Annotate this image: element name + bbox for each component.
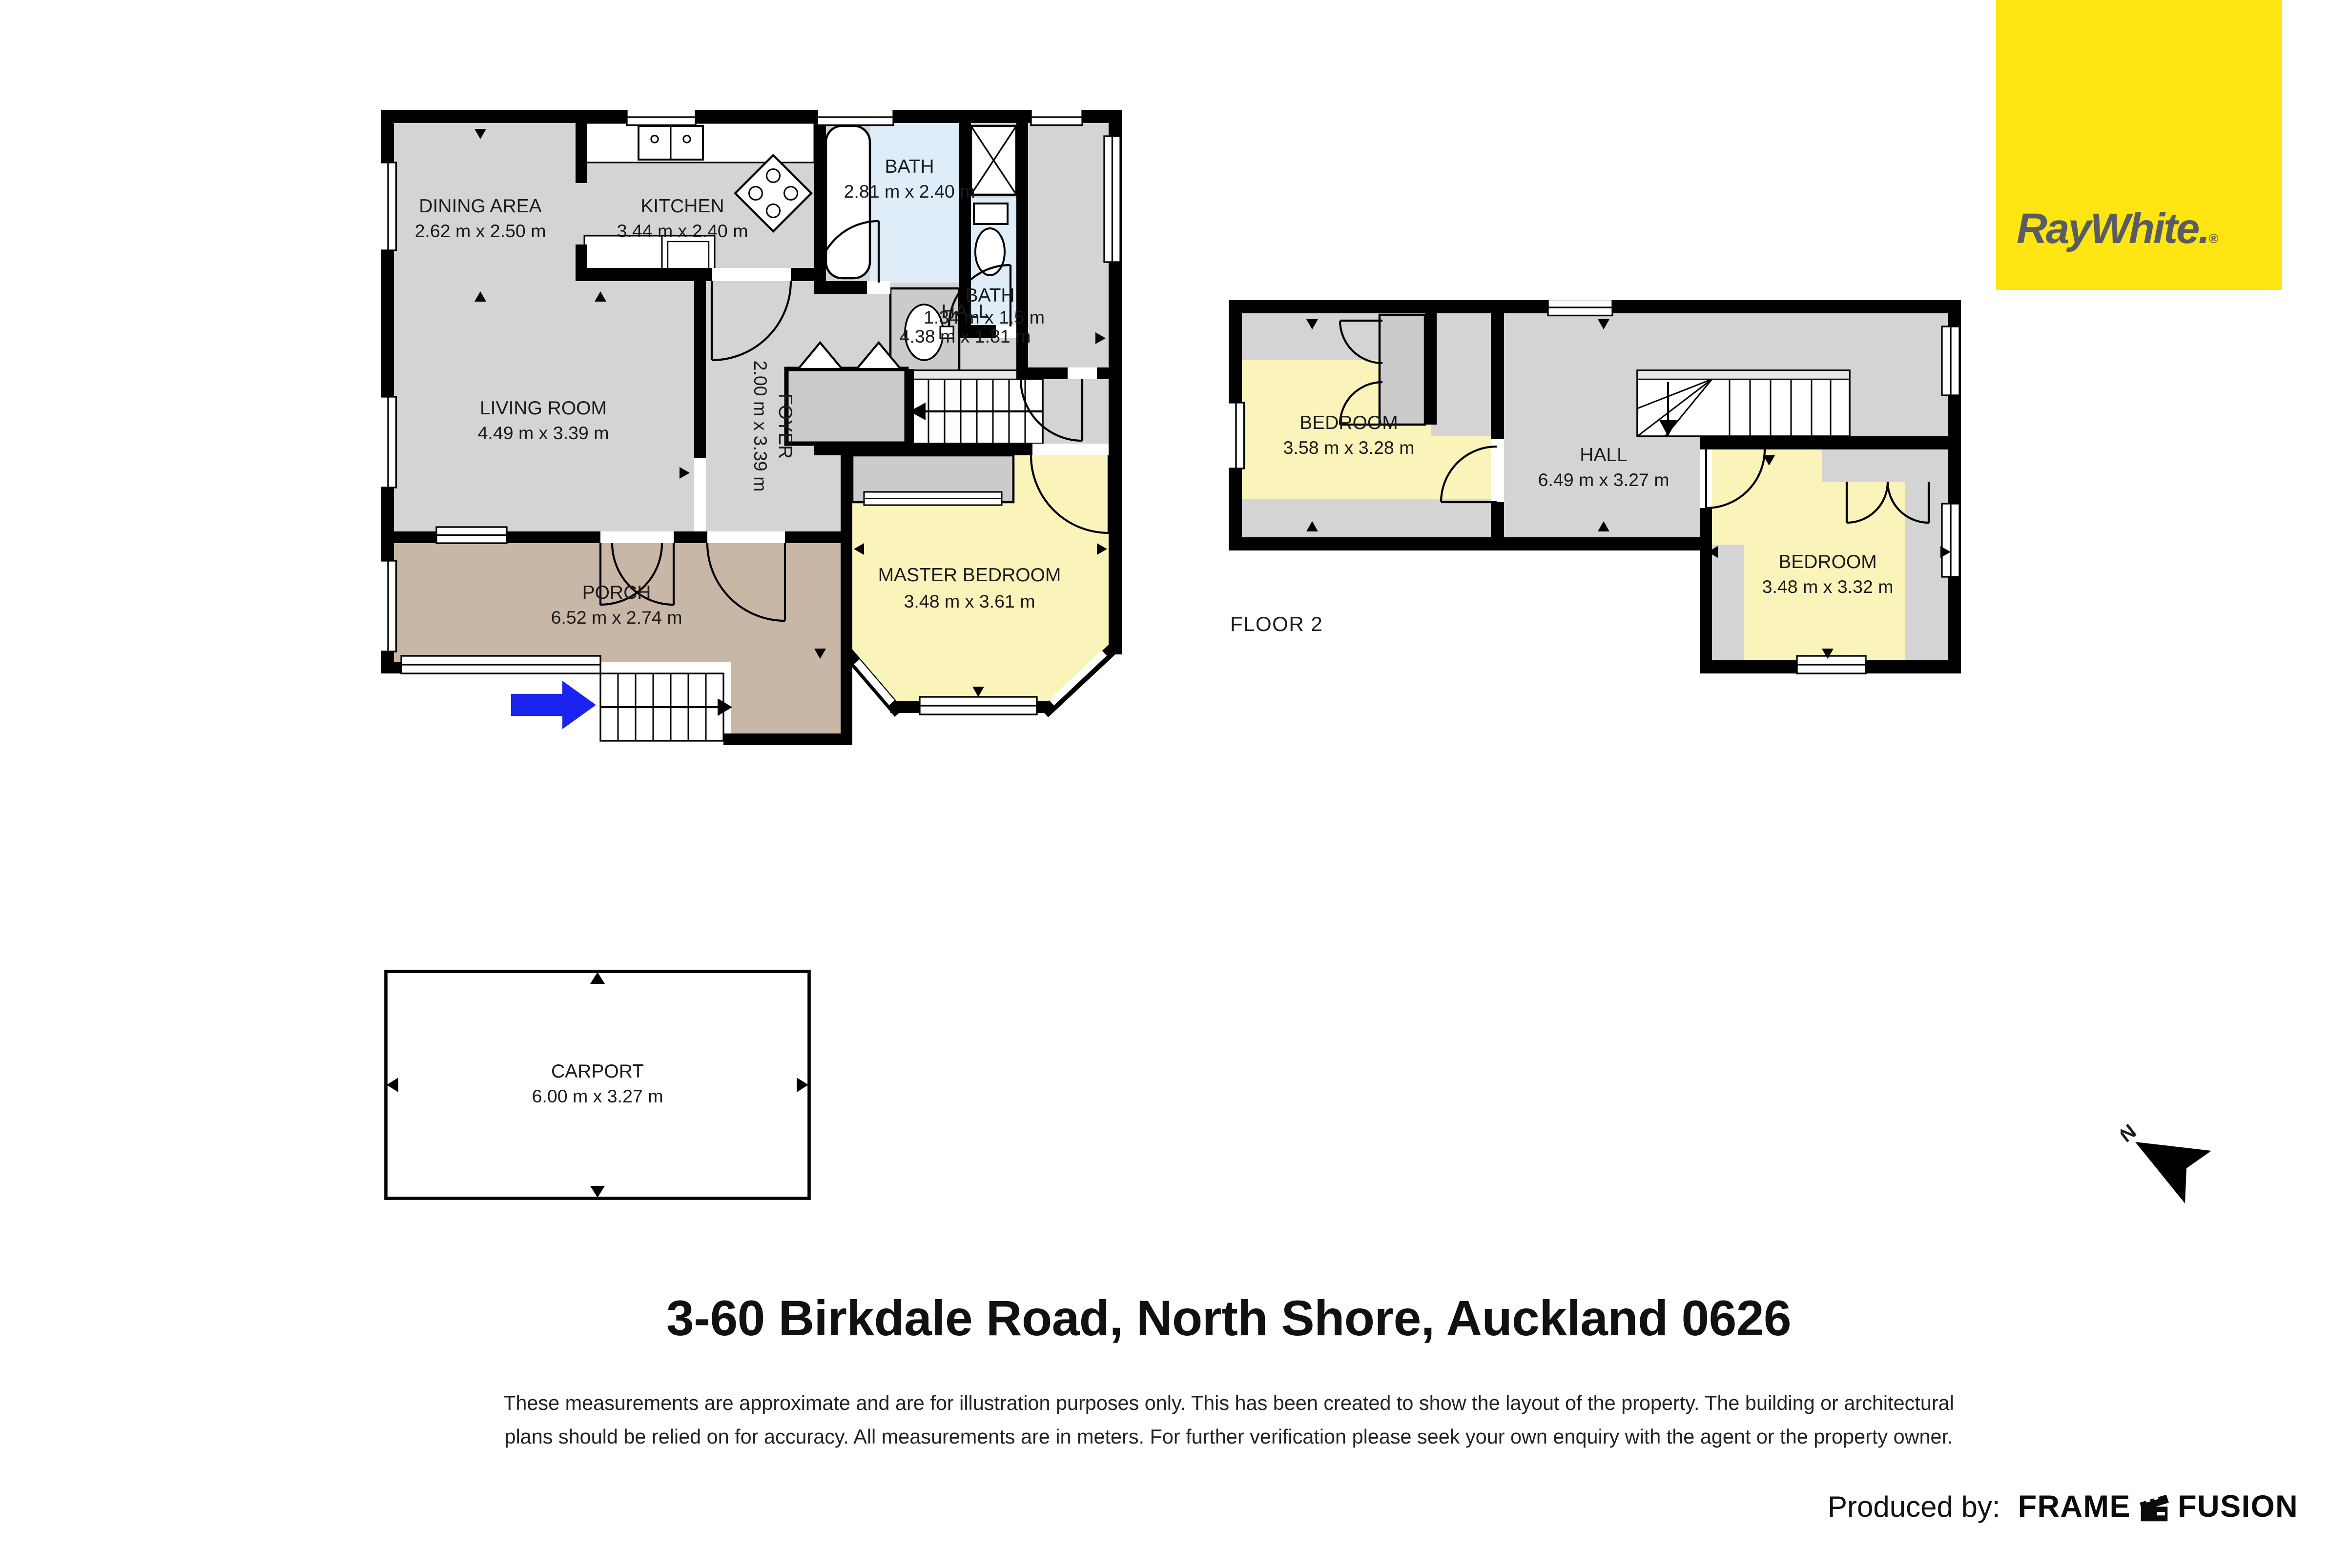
produced-by-label: Produced by: — [1828, 1491, 2000, 1525]
label-porch-name: PORCH — [582, 582, 651, 603]
ray-white-wordmark: RayWhite. — [2017, 206, 2209, 253]
bathtub-icon — [826, 126, 870, 278]
frame-fusion-word1: FRAME — [2018, 1490, 2131, 1526]
disclaimer-line2: plans should be relied on for accuracy. … — [439, 1421, 2018, 1454]
stairs-floor2 — [1637, 370, 1850, 436]
label-hall1-dims: 4.38 m x 1.81 m — [900, 326, 1031, 346]
label-kitchen-name: KITCHEN — [640, 196, 724, 217]
ray-white-logo-text: RayWhite.® — [2017, 206, 2218, 255]
front-steps — [600, 673, 732, 741]
registered-trademark-icon: ® — [2209, 231, 2219, 246]
floor2-title: FLOOR 2 — [1230, 612, 1323, 635]
label-carport-name: CARPORT — [551, 1061, 644, 1082]
label-porch-dims: 6.52 m x 2.74 m — [551, 607, 682, 628]
label-foyer-dims: 2.00 m x 3.39 m — [750, 361, 771, 492]
ray-white-logo: RayWhite.® — [1996, 0, 2282, 290]
label-hall2-dims: 6.49 m x 3.27 m — [1538, 469, 1670, 490]
bedroom-right-strip-left — [1712, 545, 1744, 660]
frame-fusion-logo: FRAME FUSION — [2018, 1490, 2299, 1526]
room-bath-main-area — [870, 123, 959, 283]
floor1-plan: DINING AREA 2.62 m x 2.50 m KITCHEN 3.44… — [381, 110, 1128, 754]
bedroom-left-recess — [1431, 313, 1491, 436]
north-compass: N — [2121, 1119, 2245, 1221]
label-foyer-name: FOYER — [775, 393, 796, 459]
label-living-dims: 4.49 m x 3.39 m — [478, 423, 609, 443]
label-living-name: LIVING ROOM — [480, 398, 607, 419]
produced-by-row: Produced by: FRAME FUSION — [1828, 1490, 2298, 1526]
label-bedroom-right-dims: 3.48 m x 3.32 m — [1762, 576, 1894, 597]
north-arrow-icon — [2135, 1142, 2211, 1203]
property-address: 3-60 Birkdale Road, North Shore, Aucklan… — [439, 1291, 2018, 1348]
stairs-floor1 — [909, 370, 1043, 444]
entry-arrow-icon — [511, 681, 596, 729]
label-dining-dims: 2.62 m x 2.50 m — [415, 221, 546, 241]
clapperboard-icon — [2138, 1493, 2170, 1523]
label-kitchen-dims: 3.44 m x 2.40 m — [617, 221, 748, 241]
room-carport-area — [386, 972, 809, 1199]
label-master-name: MASTER BEDROOM — [878, 565, 1061, 586]
label-bedroom-left-dims: 3.58 m x 3.28 m — [1283, 437, 1415, 458]
disclaimer-text: These measurements are approximate and a… — [439, 1388, 2018, 1454]
floor2-plan: BEDROOM 3.58 m x 3.28 m HALL 6.49 m x 3.… — [1229, 300, 1961, 695]
bedroom-right-closet-area — [1822, 449, 1948, 482]
label-hall1-name: HALL — [941, 301, 989, 322]
master-wardrobe-icon — [852, 455, 1013, 505]
label-bedroom-right-name: BEDROOM — [1778, 551, 1877, 572]
shower-icon — [971, 126, 1016, 195]
label-carport-dims: 6.00 m x 3.27 m — [532, 1086, 663, 1106]
label-bedroom-left-name: BEDROOM — [1299, 412, 1398, 433]
label-bath-main-dims: 2.81 m x 2.40 m — [844, 181, 975, 202]
floorplan-page: DINING AREA 2.62 m x 2.50 m KITCHEN 3.44… — [0, 0, 2350, 1568]
label-bath-main-name: BATH — [885, 156, 934, 177]
living-foyer-area — [394, 269, 841, 543]
frame-fusion-word2: FUSION — [2178, 1490, 2298, 1526]
label-master-dims: 3.48 m x 3.61 m — [904, 591, 1035, 611]
label-dining-name: DINING AREA — [419, 196, 541, 217]
bedroom-left-wardrobe-icon — [1380, 315, 1425, 425]
carport-plan: CARPORT 6.00 m x 3.27 m — [384, 969, 811, 1201]
label-hall2-name: HALL — [1580, 445, 1628, 466]
disclaimer-line1: These measurements are approximate and a… — [439, 1388, 2018, 1421]
